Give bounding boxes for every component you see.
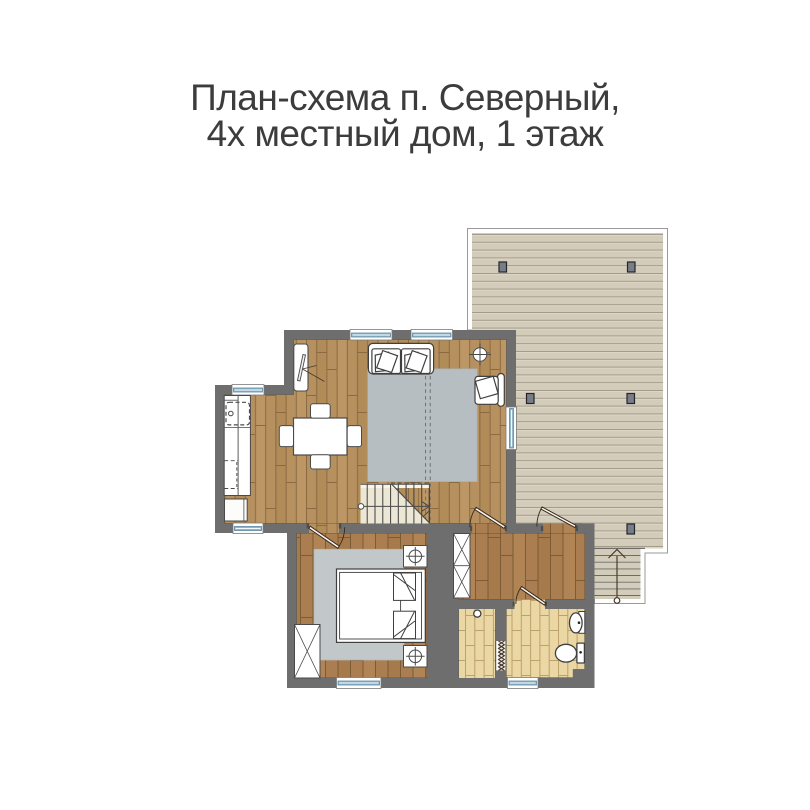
svg-text:План-схема п. Северный,: План-схема п. Северный, (190, 77, 620, 118)
svg-text:4х местный дом, 1 этаж: 4х местный дом, 1 этаж (207, 113, 604, 154)
